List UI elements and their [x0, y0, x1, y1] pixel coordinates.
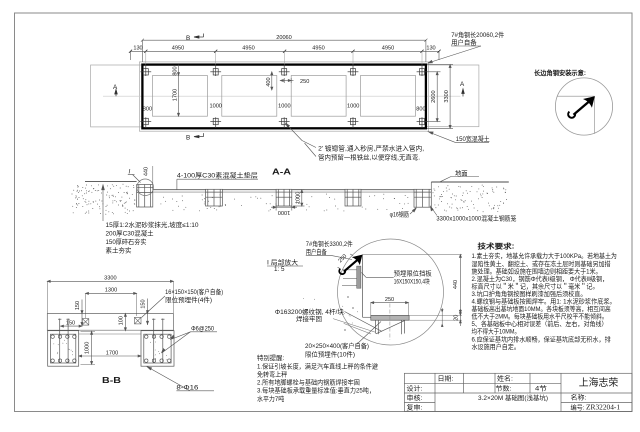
svg-text:150: 150 — [66, 321, 75, 327]
svg-text:水平力7吨: 水平力7吨 — [257, 394, 285, 403]
svg-text:编号:: 编号: — [571, 402, 585, 411]
svg-text:Φ163200螺纹钢, 4杆/块: Φ163200螺纹钢, 4杆/块 — [275, 307, 345, 316]
svg-text:5、各基础板中心相对误差（前后、左右，对角线）: 5、各基础板中心相对误差（前后、左右，对角线） — [472, 319, 608, 328]
svg-text:4950: 4950 — [312, 45, 324, 51]
svg-text:2600: 2600 — [431, 90, 437, 102]
svg-text:审核:: 审核: — [407, 393, 423, 402]
svg-text:素土夯实: 素土夯实 — [106, 245, 132, 254]
svg-text:限位预埋件(4件): 限位预埋件(4件) — [165, 295, 212, 304]
svg-text:3300x1000x1000混凝土钢筋笼: 3300x1000x1000混凝土钢筋笼 — [436, 214, 517, 223]
svg-text:1000: 1000 — [85, 342, 91, 354]
svg-text:上海志荣: 上海志荣 — [579, 376, 619, 389]
svg-text:4-100厚C30素混凝土垫层: 4-100厚C30素混凝土垫层 — [177, 170, 258, 179]
svg-text:3.2×20M 基础图(浅基坑): 3.2×20M 基础图(浅基坑) — [478, 393, 548, 402]
svg-text:16X150X150,4块: 16X150X150,4块 — [394, 277, 431, 286]
svg-text:特别提醒:: 特别提醒: — [257, 353, 284, 362]
svg-text:800: 800 — [143, 106, 152, 112]
svg-text:4950: 4950 — [382, 45, 394, 51]
svg-text:4950: 4950 — [172, 45, 184, 51]
svg-text:200厚C30混凝土: 200厚C30混凝土 — [106, 229, 154, 238]
svg-text:20060: 20060 — [276, 35, 292, 41]
svg-text:长边角钢安装示意:: 长边角钢安装示意: — [534, 68, 586, 77]
svg-text:B: B — [186, 35, 190, 42]
svg-text:B: B — [186, 134, 190, 141]
svg-text:6.应保证基坑内排水顺畅，保证基坑底部无积水，排: 6.应保证基坑内排水顺畅，保证基坑底部无积水，排 — [472, 334, 612, 343]
svg-text:4节: 4节 — [535, 384, 547, 392]
svg-text:150: 150 — [75, 301, 81, 310]
svg-text:440: 440 — [453, 280, 459, 289]
svg-text:1700: 1700 — [106, 350, 118, 356]
svg-text:1: 5: 1: 5 — [274, 266, 285, 273]
svg-text:1000: 1000 — [347, 104, 359, 110]
svg-text:姓名:: 姓名: — [497, 374, 513, 383]
svg-text:7#角钢长20060,2件: 7#角钢长20060,2件 — [451, 30, 504, 39]
svg-text:水设施用户自定。: 水设施用户自定。 — [472, 342, 520, 351]
svg-text:焊接牢固: 焊接牢固 — [296, 314, 322, 323]
svg-text:1000: 1000 — [278, 209, 290, 215]
svg-text:150宽混凝土: 150宽混凝土 — [456, 134, 490, 143]
svg-text:标高尺寸以＂米＂记，其余尺寸以＂毫米＂记。: 标高尺寸以＂米＂记，其余尺寸以＂毫米＂记。 — [472, 281, 599, 290]
svg-text:均不得大于10MM。: 均不得大于10MM。 — [472, 327, 521, 336]
svg-text:复审:: 复审: — [407, 403, 423, 412]
svg-text:1.素土夯实，地基允许承载力大于100KPa。若地基土为: 1.素土夯实，地基允许承载力大于100KPa。若地基土为 — [472, 251, 617, 260]
svg-text:设计:: 设计: — [407, 383, 423, 392]
svg-text:B-B: B-B — [102, 375, 121, 385]
svg-text:1000: 1000 — [295, 192, 301, 204]
svg-text:7#角钢长3300,2件: 7#角钢长3300,2件 — [306, 239, 353, 248]
svg-text:湿陷性黄土、翻挖土、或存在冻土层时则基础另加措: 湿陷性黄土、翻挖土、或存在冻土层时则基础另加措 — [472, 259, 612, 268]
svg-text:日期:: 日期: — [438, 375, 454, 383]
svg-text:800: 800 — [173, 66, 179, 75]
svg-text:250: 250 — [385, 297, 394, 303]
svg-text:名称:: 名称: — [571, 393, 587, 402]
svg-text:基础板高出基坑地面10MM。各块板须等高，相互间高: 基础板高出基坑地面10MM。各块板须等高，相互间高 — [472, 304, 611, 313]
svg-text:20: 20 — [453, 315, 459, 321]
svg-text:15厚1:2水泥砂浆抹光,坡度≤1:10: 15厚1:2水泥砂浆抹光,坡度≤1:10 — [106, 220, 200, 229]
svg-text:限位预埋件(10件): 限位预埋件(10件) — [305, 349, 355, 358]
svg-text:3300: 3300 — [444, 90, 450, 102]
svg-text:2.所有地脚螺栓与基础内钢筋焊接牢固: 2.所有地脚螺栓与基础内钢筋焊接牢固 — [257, 378, 360, 387]
svg-text:地面: 地面 — [455, 168, 468, 177]
svg-text:技术要求:: 技术要求: — [478, 241, 515, 250]
svg-text:2’ 镀锪管,通入秒房,严禁水进入管内,: 2’ 镀锪管,通入秒房,严禁水进入管内, — [318, 144, 424, 153]
svg-text:1.保证引坡长度，满足汽车直线上秤的条件避: 1.保证引坡长度，满足汽车直线上秤的条件避 — [257, 361, 379, 370]
svg-text:免转弯上秤: 免转弯上秤 — [257, 370, 288, 379]
svg-text:130: 130 — [133, 45, 142, 51]
svg-text:1700: 1700 — [173, 89, 179, 101]
svg-text:用户自备: 用户自备 — [306, 247, 328, 256]
svg-text:4950: 4950 — [242, 45, 254, 51]
svg-text:3300: 3300 — [104, 276, 116, 282]
svg-text:A-A: A-A — [272, 167, 291, 177]
svg-text:400: 400 — [266, 77, 272, 86]
svg-text:130: 130 — [426, 45, 435, 51]
svg-text:440: 440 — [144, 167, 150, 176]
svg-text:3.坑口护角角钢按图样刷漆加强后须校直。: 3.坑口护角角钢按图样刷漆加强后须校直。 — [472, 289, 587, 298]
svg-text:100: 100 — [118, 316, 124, 325]
svg-text:1000: 1000 — [278, 104, 290, 110]
svg-text:预埋限位挡板: 预埋限位挡板 — [394, 269, 433, 278]
svg-text:施处理。基础如设施在围墙边则相距要大于1米。: 施处理。基础如设施在围墙边则相距要大于1米。 — [472, 266, 602, 275]
svg-text:管内预留一根铁丝,以便穿线,无直弯.: 管内预留一根铁丝,以便穿线,无直弯. — [318, 153, 420, 162]
svg-text:3.每块基础板承载重量标准值:垂直力25吨，: 3.每块基础板承载重量标准值:垂直力25吨， — [257, 386, 375, 395]
svg-text:用户自备: 用户自备 — [451, 38, 477, 47]
svg-text:150厚碎石夯实: 150厚碎石夯实 — [106, 237, 147, 246]
svg-text:150: 150 — [140, 299, 146, 308]
svg-text:节数:: 节数: — [496, 383, 512, 392]
svg-text:ZR32204-1: ZR32204-1 — [586, 403, 620, 412]
svg-text:φ16钢筋: φ16钢筋 — [390, 210, 410, 219]
svg-text:低不大于2MM。每块基础板用水平尺校平不能倾斜。: 低不大于2MM。每块基础板用水平尺校平不能倾斜。 — [472, 312, 608, 321]
svg-text:4.螺纹钢与基础板按图焊牢。用1: 1水泥砂浆作底浆。: 4.螺纹钢与基础板按图焊牢。用1: 1水泥砂浆作底浆。 — [472, 297, 616, 306]
svg-text:250: 250 — [300, 79, 309, 85]
svg-text:800: 800 — [416, 106, 425, 112]
svg-text:16×150×150(客户自备): 16×150×150(客户自备) — [165, 287, 223, 296]
svg-text:2.混凝土为C30，钢筋Φ代表Ⅰ级钢， Φ代表Ⅱ级钢，: 2.混凝土为C30，钢筋Φ代表Ⅰ级钢， Φ代表Ⅱ级钢， — [472, 274, 609, 283]
svg-text:1000: 1000 — [209, 104, 221, 110]
svg-text:1300: 1300 — [105, 288, 117, 294]
